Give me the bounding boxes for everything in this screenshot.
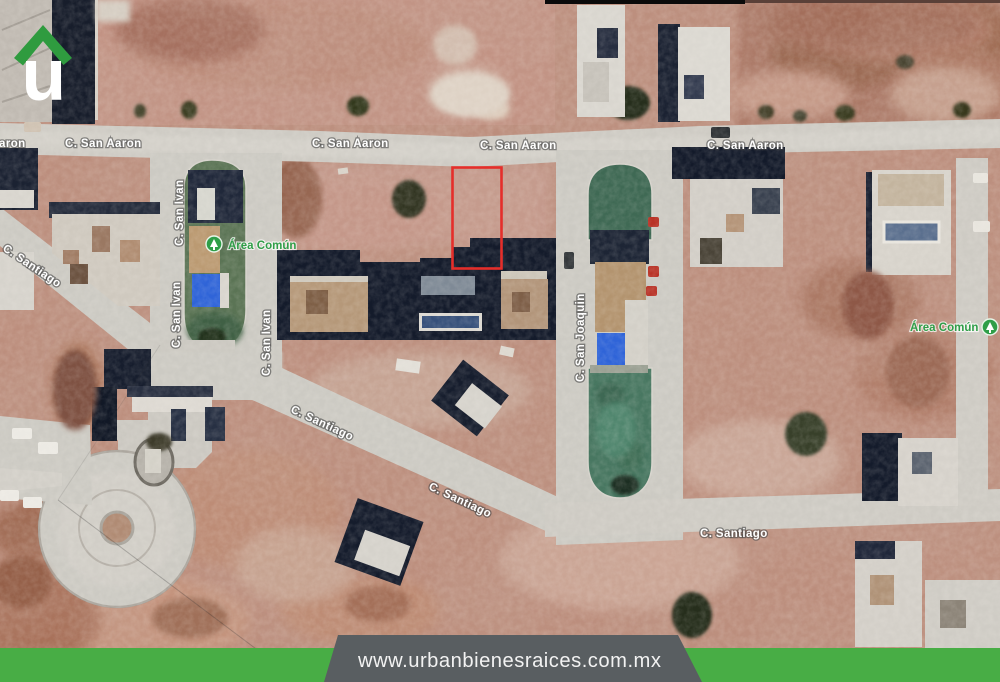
svg-text:C. San Aaron: C. San Aaron	[480, 140, 557, 152]
svg-text:C. San Ivan: C. San Ivan	[171, 282, 183, 348]
svg-text:Área Común: Área Común	[228, 239, 296, 252]
svg-text:C. San Aaron: C. San Aaron	[312, 138, 389, 150]
svg-text:C. San Ivan: C. San Ivan	[174, 180, 186, 246]
svg-text:C. San Ivan: C. San Ivan	[261, 310, 273, 376]
svg-text:u: u	[22, 35, 67, 116]
svg-text:C. San Aaron: C. San Aaron	[0, 138, 26, 150]
svg-text:C. San Aaron: C. San Aaron	[65, 138, 142, 150]
svg-text:C. San Aaron: C. San Aaron	[707, 140, 784, 152]
svg-text:www.urbanbienesraices.com.mx: www.urbanbienesraices.com.mx	[357, 650, 661, 672]
svg-text:C. San Joaquin: C. San Joaquin	[575, 293, 587, 382]
svg-text:C. Santiago: C. Santiago	[700, 528, 768, 540]
svg-text:Área Común: Área Común	[910, 321, 978, 334]
